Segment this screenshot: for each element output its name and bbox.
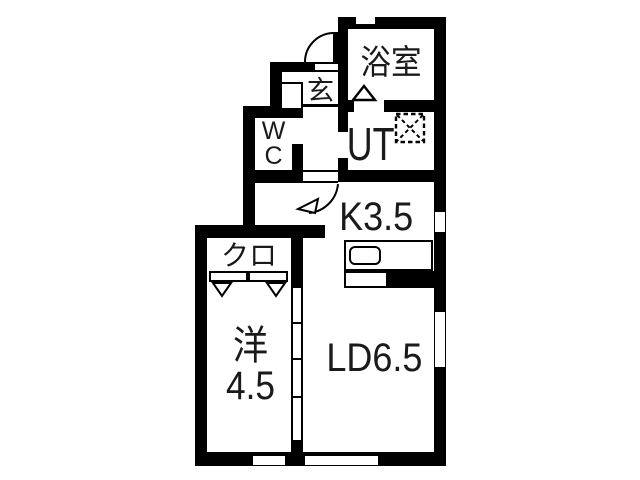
kitchen-window	[435, 212, 445, 232]
entrance-label: 玄	[303, 76, 338, 106]
kitchen-counter-front	[344, 271, 388, 288]
living-window	[435, 312, 445, 367]
entry-door-swing-icon	[305, 33, 334, 62]
western-room-window	[253, 456, 285, 465]
kitchen-counter-wall	[388, 271, 434, 288]
toilet-label: W C	[255, 118, 292, 170]
kitchen-door-leaf-icon	[298, 199, 318, 213]
sliding-door-track-right	[301, 288, 303, 440]
closet-right-wall	[291, 238, 303, 288]
bathroom-label: 浴室	[348, 44, 434, 82]
shoe-cabinet	[280, 82, 303, 110]
closet-door-panel-left	[209, 271, 248, 282]
bathroom-door-triangle-icon	[353, 86, 375, 100]
washer-pan-icon	[396, 114, 424, 142]
kitchen-label: K3.5	[330, 198, 422, 236]
bathroom-top-wall	[338, 17, 446, 29]
closet-door-panel-right	[248, 271, 288, 282]
western-room-label: 洋4.5	[203, 346, 298, 386]
kitchen-door-threshold	[303, 170, 338, 183]
closet-fold-triangle-left-icon	[213, 283, 231, 296]
bath-bottom-wall-right	[384, 100, 434, 112]
sliding-door-tick-3	[291, 396, 303, 398]
symbols-layer	[0, 0, 640, 480]
floor-plan: 浴室 玄 W C UT K3.5 クロ 洋4.5 LD6.5	[0, 0, 640, 480]
utility-label: UT	[345, 122, 397, 166]
entry-door-threshold	[315, 62, 338, 72]
kitchen-sink	[349, 246, 381, 265]
living-dining-window	[305, 456, 378, 465]
living-dining-label: LD6.5	[318, 338, 430, 378]
bath-bottom-wall-left	[348, 100, 354, 112]
wc-door-opening	[292, 118, 303, 144]
closet-label: クロ	[207, 241, 291, 271]
closet-top-wall	[195, 225, 325, 238]
closet-fold-triangle-right-icon	[267, 283, 285, 296]
ut-bottom-wall	[338, 170, 446, 182]
bathroom-window	[356, 17, 375, 24]
right-wall	[434, 17, 446, 466]
wc-bottom-wall	[243, 170, 303, 183]
sliding-door-tick-1	[291, 322, 303, 324]
